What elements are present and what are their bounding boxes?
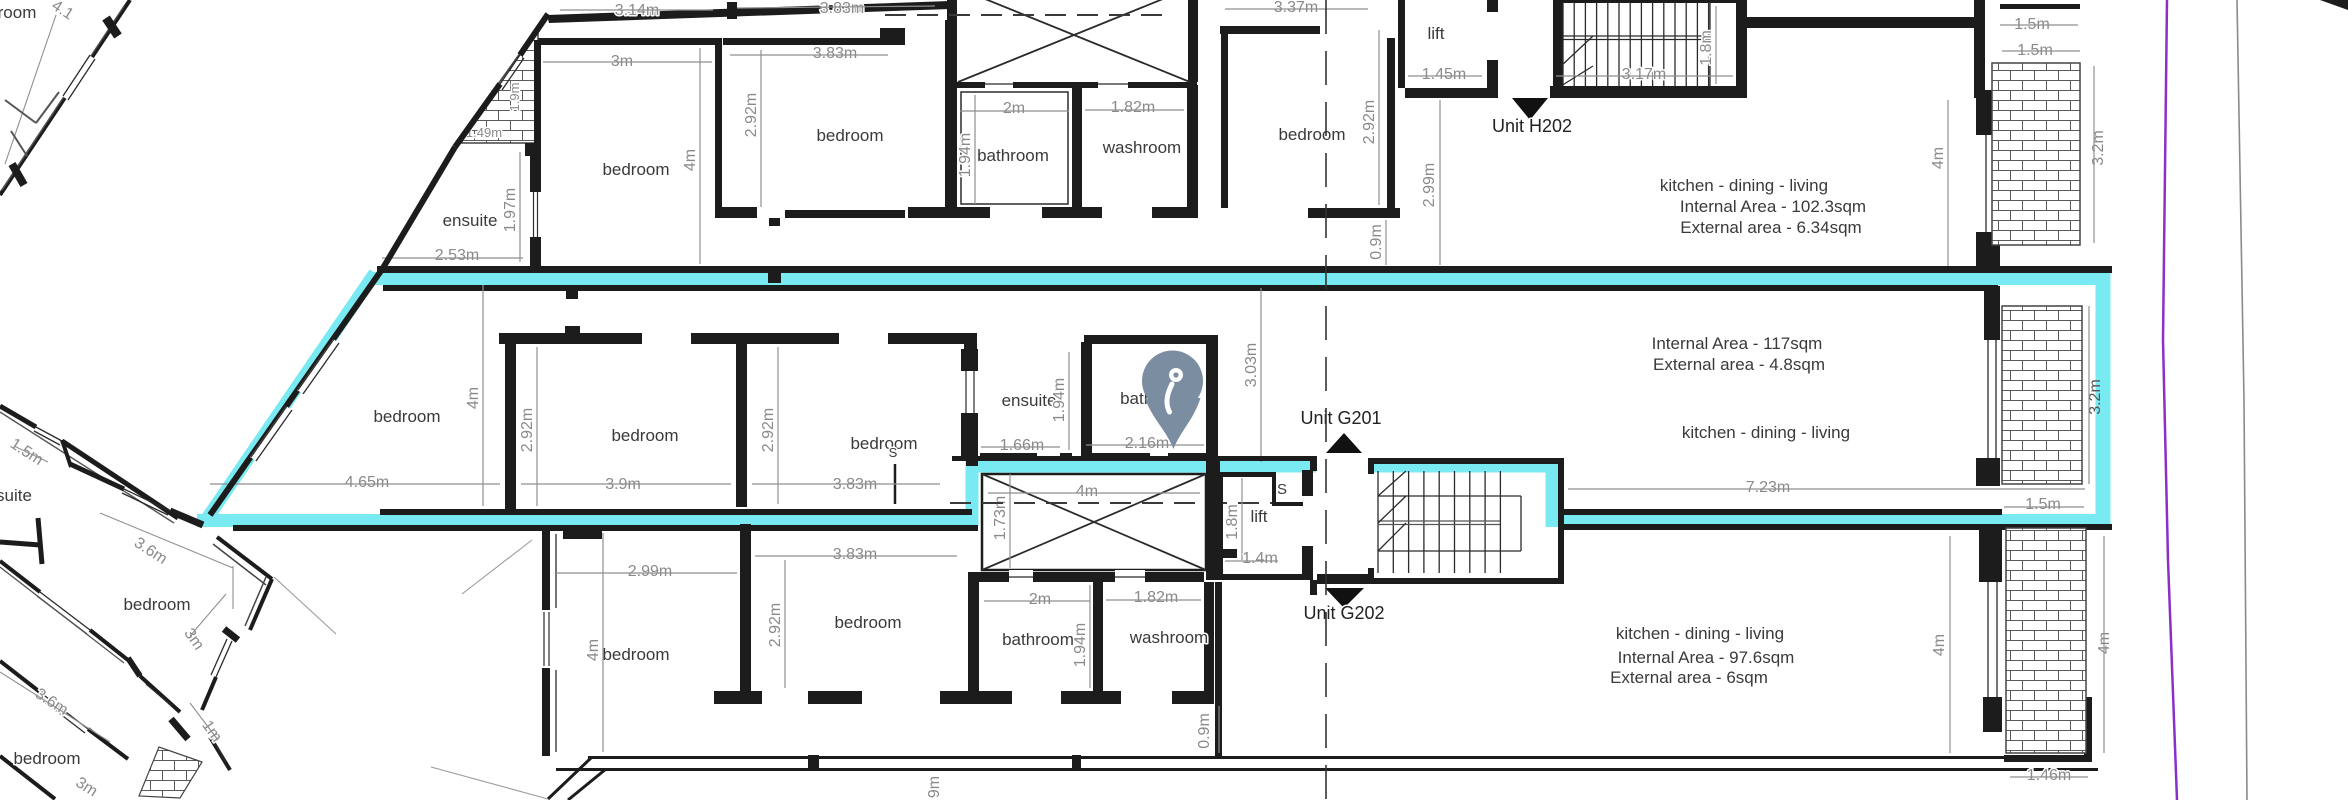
svg-text:S: S bbox=[889, 445, 898, 460]
svg-text:4m: 4m bbox=[682, 149, 699, 171]
svg-text:1.94m: 1.94m bbox=[957, 133, 974, 177]
svg-text:3.17m: 3.17m bbox=[1622, 66, 1666, 83]
svg-text:2m: 2m bbox=[1029, 591, 1051, 608]
svg-text:4m: 4m bbox=[465, 387, 482, 409]
svg-text:1.8m: 1.8m bbox=[1698, 30, 1715, 66]
svg-text:washroom: washroom bbox=[1102, 138, 1181, 157]
svg-text:External area - 4.8sqm: External area - 4.8sqm bbox=[1653, 355, 1825, 374]
svg-text:2.16m: 2.16m bbox=[1125, 435, 1169, 452]
svg-text:1.82m: 1.82m bbox=[1134, 589, 1178, 606]
svg-text:1.94m: 1.94m bbox=[1072, 623, 1089, 667]
svg-text:lift: lift bbox=[1251, 507, 1268, 526]
svg-text:1.97m: 1.97m bbox=[502, 188, 519, 232]
svg-text:1.66m: 1.66m bbox=[1000, 437, 1044, 454]
svg-text:1.9m: 1.9m bbox=[507, 83, 522, 112]
svg-text:1.5m: 1.5m bbox=[2025, 496, 2061, 513]
svg-text:bedroom: bedroom bbox=[123, 595, 190, 614]
svg-text:bedroom: bedroom bbox=[373, 407, 440, 426]
svg-text:ensuite: ensuite bbox=[443, 211, 498, 230]
svg-text:bathroom: bathroom bbox=[1002, 630, 1074, 649]
svg-text:1.46m: 1.46m bbox=[2027, 767, 2071, 784]
svg-text:3.03m: 3.03m bbox=[1243, 343, 1260, 387]
svg-text:2m: 2m bbox=[1003, 100, 1025, 117]
svg-text:lift: lift bbox=[1428, 24, 1445, 43]
svg-text:4.65m: 4.65m bbox=[345, 474, 389, 491]
svg-text:bedroom: bedroom bbox=[602, 160, 669, 179]
svg-text:Unit G201: Unit G201 bbox=[1300, 408, 1381, 428]
svg-text:2.99m: 2.99m bbox=[1421, 163, 1438, 207]
svg-text:2.92m: 2.92m bbox=[519, 408, 536, 452]
svg-text:2.92m: 2.92m bbox=[767, 603, 784, 647]
svg-text:washroom: washroom bbox=[1129, 628, 1208, 647]
svg-text:ensuite: ensuite bbox=[1002, 391, 1057, 410]
svg-text:bedroom: bedroom bbox=[602, 645, 669, 664]
svg-text:Internal Area - 117sqm: Internal Area - 117sqm bbox=[1652, 334, 1823, 353]
svg-text:1.45m: 1.45m bbox=[1422, 66, 1466, 83]
svg-text:7.23m: 7.23m bbox=[1746, 479, 1790, 496]
svg-text:bedroom: bedroom bbox=[816, 126, 883, 145]
svg-text:3.83m: 3.83m bbox=[813, 45, 857, 62]
svg-text:1.82m: 1.82m bbox=[1111, 99, 1155, 116]
svg-text:External area - 6sqm: External area - 6sqm bbox=[1610, 668, 1768, 687]
svg-text:0.9m: 0.9m bbox=[1368, 224, 1385, 260]
svg-text:9m: 9m bbox=[926, 776, 943, 798]
svg-text:4m: 4m bbox=[1931, 634, 1948, 656]
svg-text:1.8m: 1.8m bbox=[1224, 504, 1241, 540]
svg-text:4m: 4m bbox=[1930, 147, 1947, 169]
svg-text:kitchen - dining - living: kitchen - dining - living bbox=[1616, 624, 1784, 643]
svg-text:bedroom: bedroom bbox=[1278, 125, 1345, 144]
svg-text:3.83m: 3.83m bbox=[833, 546, 877, 563]
svg-text:4m: 4m bbox=[585, 639, 602, 661]
svg-text:1.94m: 1.94m bbox=[1051, 378, 1068, 422]
svg-text:Unit H202: Unit H202 bbox=[1492, 116, 1572, 136]
svg-text:bathroom: bathroom bbox=[977, 146, 1049, 165]
svg-text:3.2m: 3.2m bbox=[2090, 130, 2107, 166]
svg-text:2.53m: 2.53m bbox=[435, 247, 479, 264]
svg-text:suite: suite bbox=[0, 486, 32, 505]
svg-text:1.4m: 1.4m bbox=[1242, 550, 1278, 567]
svg-text:2.92m: 2.92m bbox=[760, 408, 777, 452]
svg-text:2.92m: 2.92m bbox=[1361, 100, 1378, 144]
svg-text:bedroom: bedroom bbox=[850, 434, 917, 453]
svg-text:bedroom: bedroom bbox=[611, 426, 678, 445]
svg-text:0.9m: 0.9m bbox=[1196, 713, 1213, 749]
svg-text:bedroom: bedroom bbox=[13, 749, 80, 768]
svg-text:3.83m: 3.83m bbox=[820, 0, 864, 17]
svg-text:4m: 4m bbox=[1076, 483, 1098, 500]
svg-text:2.99m: 2.99m bbox=[628, 563, 672, 580]
svg-text:Internal Area - 102.3sqm: Internal Area - 102.3sqm bbox=[1680, 197, 1866, 216]
svg-text:kitchen - dining - living: kitchen - dining - living bbox=[1682, 423, 1850, 442]
svg-text:External area - 6.34sqm: External area - 6.34sqm bbox=[1680, 218, 1861, 237]
svg-text:room: room bbox=[0, 3, 36, 22]
svg-text:bedroom: bedroom bbox=[834, 613, 901, 632]
svg-text:3.37m: 3.37m bbox=[1274, 0, 1318, 16]
svg-text:Unit G202: Unit G202 bbox=[1303, 603, 1384, 623]
svg-text:2.92m: 2.92m bbox=[743, 93, 760, 137]
svg-text:Internal Area - 97.6sqm: Internal Area - 97.6sqm bbox=[1618, 648, 1795, 667]
svg-text:S: S bbox=[1277, 481, 1287, 498]
svg-text:kitchen - dining - living: kitchen - dining - living bbox=[1660, 176, 1828, 195]
